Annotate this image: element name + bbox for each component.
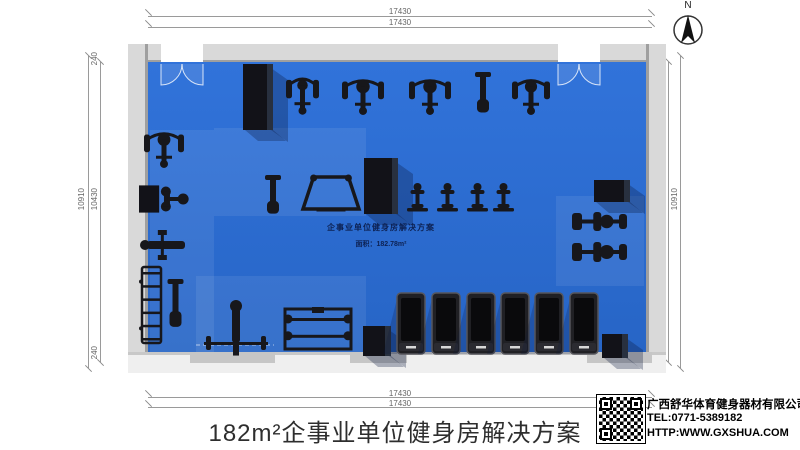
- spin-bike-2: [436, 182, 459, 215]
- adjustable-bench: [252, 175, 294, 217]
- power-rack: [302, 174, 360, 214]
- qr-code: [597, 395, 645, 443]
- barbell-rack: [284, 306, 352, 354]
- dumbbell-rack: [141, 266, 162, 344]
- strength-machine-2: [342, 74, 384, 116]
- company-tel: TEL:0771-5389182: [647, 412, 742, 424]
- barbell-bench: [204, 298, 268, 356]
- floor-plan-label-area: 面积：182.78m²: [306, 239, 456, 249]
- spin-bike-4: [492, 182, 515, 215]
- squat-machine: [144, 127, 184, 169]
- floor-plan-label: 企事业单位健身房解决方案 面积：182.78m²: [306, 222, 456, 249]
- pec-fly-machine: [139, 182, 187, 216]
- rowing-machine-1: [572, 211, 628, 232]
- box-bottom-right: [602, 334, 628, 358]
- pillar-center: [364, 158, 398, 214]
- strength-machine-3: [409, 74, 451, 116]
- strength-machine-1: [286, 72, 319, 116]
- flat-bench: [165, 279, 186, 331]
- qr-finder-icon: [600, 398, 612, 410]
- strength-machine-5: [512, 74, 550, 116]
- treadmill-6: [570, 293, 598, 354]
- rowing-machine-2: [572, 241, 628, 263]
- pillar-top-left: [243, 64, 273, 130]
- bench-press: [139, 230, 191, 260]
- strength-machine-4: [464, 72, 502, 116]
- beam-right: [594, 180, 630, 202]
- company-url: HTTP:WWW.GXSHUA.COM: [647, 427, 789, 439]
- qr-finder-icon: [600, 428, 612, 440]
- spin-bike-3: [466, 182, 489, 215]
- company-name: 广西舒华体育健身器材有限公司: [647, 396, 800, 412]
- qr-finder-icon: [630, 398, 642, 410]
- spin-bike-1: [406, 182, 429, 215]
- floor-plan-label-title: 企事业单位健身房解决方案: [306, 222, 456, 233]
